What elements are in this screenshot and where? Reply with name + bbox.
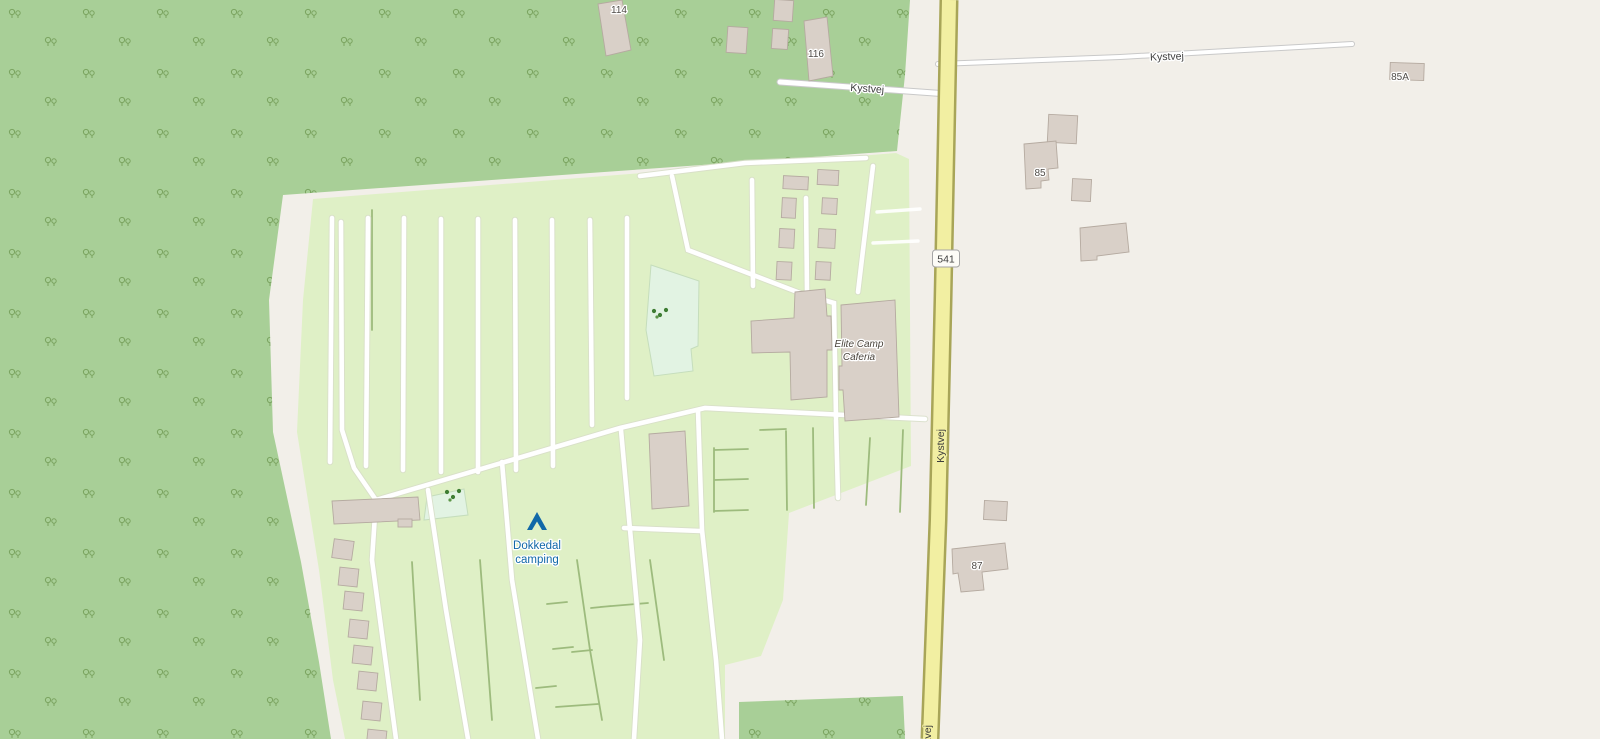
building	[781, 198, 796, 219]
road-label-kystvej-left: Kystvej	[850, 82, 885, 96]
building	[983, 500, 1007, 520]
building	[773, 0, 793, 22]
building	[366, 729, 387, 739]
building	[348, 619, 369, 639]
camp-path	[836, 420, 838, 498]
route-shield-541: 541	[933, 250, 960, 267]
building	[726, 26, 748, 53]
camp-site-label-line1: Dokkedal	[513, 540, 561, 552]
building	[783, 176, 809, 190]
road-label-kystvej-bottom: Kystvej	[922, 725, 934, 739]
camp-path	[806, 198, 807, 292]
building	[815, 261, 831, 280]
road-label-kystvej-vertical: Kystvej	[935, 429, 947, 463]
building	[1071, 179, 1091, 202]
road-label-kystvej-top: Kystvej	[1150, 50, 1184, 63]
building	[352, 645, 373, 665]
building	[779, 229, 795, 249]
camp-path	[403, 218, 404, 470]
house-number-85A: 85A	[1391, 72, 1409, 83]
building	[818, 229, 836, 249]
map-viewport[interactable]: 541 Kystvej Kystvej Kystvej Kystvej 114 …	[0, 0, 1600, 739]
building	[776, 261, 792, 280]
house-number-114: 114	[611, 5, 627, 16]
house-number-116: 116	[808, 49, 824, 60]
map-canvas[interactable]: 541 Kystvej Kystvej Kystvej Kystvej 114 …	[0, 0, 1600, 739]
house-number-85: 85	[1034, 168, 1046, 179]
camp-path	[366, 218, 368, 466]
hedge-line	[813, 428, 814, 508]
building	[332, 539, 354, 561]
camp-path	[330, 218, 332, 462]
building	[1047, 114, 1077, 143]
building	[771, 28, 788, 49]
camp-path	[552, 220, 553, 466]
camp-site-label-line2: camping	[515, 554, 558, 566]
building	[361, 701, 382, 721]
building	[817, 169, 839, 185]
cafeteria-label-line2: Caferia	[843, 352, 876, 363]
building	[398, 519, 412, 527]
camp-path	[624, 528, 700, 531]
camp-path	[590, 220, 592, 425]
camp-path	[515, 220, 516, 470]
building	[343, 591, 364, 611]
building	[649, 431, 689, 509]
camp-path	[752, 180, 753, 286]
route-shield-label: 541	[937, 254, 955, 266]
house-number-87: 87	[971, 561, 983, 572]
building	[338, 567, 359, 587]
building	[822, 198, 838, 215]
cafeteria-label-line1: Elite Camp	[835, 339, 884, 350]
building	[357, 671, 378, 691]
